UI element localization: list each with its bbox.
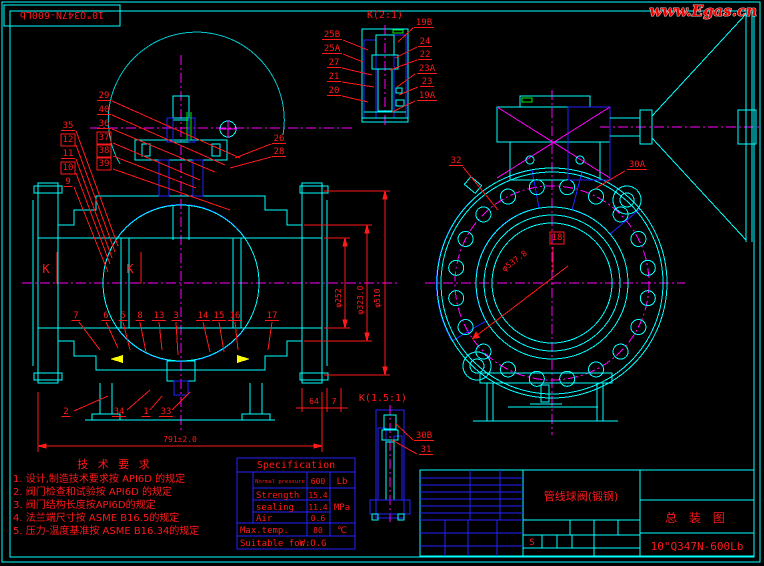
- svg-text:19A: 19A: [419, 91, 436, 101]
- spec-sealing-label: sealing: [256, 503, 294, 513]
- svg-text:28: 28: [274, 147, 285, 157]
- svg-text:30A: 30A: [629, 160, 646, 170]
- dimension-text: φ537.8: [500, 249, 529, 274]
- detail-k2-title: K(2:1): [367, 10, 403, 21]
- svg-text:40: 40: [99, 105, 110, 115]
- specification-table: Specification Normal pressure 600 Lb Str…: [237, 458, 355, 549]
- part-callout-15: 15: [212, 311, 226, 352]
- svg-text:33: 33: [161, 407, 172, 417]
- svg-text:23: 23: [422, 77, 433, 87]
- part-callout-33: 33: [159, 392, 190, 417]
- svg-text:37: 37: [99, 133, 110, 143]
- spec-pressure-label: Normal pressure: [255, 479, 305, 485]
- spec-maxtemp-label: Max.temp.: [240, 526, 289, 536]
- svg-text:26: 26: [274, 134, 285, 144]
- part-callout-6: 6: [102, 311, 118, 348]
- spec-mpa-unit: MPa: [334, 503, 350, 513]
- part-callout-8: 8: [136, 311, 146, 352]
- part-callout-31: 31: [392, 440, 433, 455]
- svg-text:15: 15: [214, 311, 225, 321]
- tech-req-title: 技 术 要 求: [77, 458, 153, 471]
- svg-text:31: 31: [421, 445, 432, 455]
- weld-mark-left: [110, 355, 123, 363]
- svg-text:3: 3: [173, 311, 178, 321]
- svg-text:20: 20: [329, 86, 340, 96]
- dimension-text: φ510: [373, 288, 382, 307]
- svg-text:36: 36: [99, 119, 110, 129]
- spec-air-value: 0.6: [311, 514, 326, 523]
- dimension-text: φ252: [334, 288, 343, 307]
- spec-strength-value: 15.4: [308, 491, 327, 500]
- part-callout-32: 32: [449, 156, 498, 210]
- svg-text:25A: 25A: [324, 44, 341, 54]
- spec-sealing-value: 11.4: [308, 503, 327, 512]
- dimension-text: 791±2.0: [163, 435, 197, 444]
- svg-text:12: 12: [63, 135, 74, 145]
- svg-text:19B: 19B: [416, 18, 432, 28]
- svg-text:34: 34: [114, 407, 125, 417]
- gear-operator: [497, 96, 610, 180]
- svg-text:5: 5: [120, 311, 125, 321]
- dimension-text: φ323.0: [356, 285, 365, 314]
- dimension-text: 64: [309, 397, 319, 406]
- spec-suitable-value: W.O.G: [299, 539, 326, 549]
- part-callout-1: 1: [142, 396, 162, 417]
- svg-text:27: 27: [329, 58, 340, 68]
- spec-pressure-unit: Lb: [337, 477, 348, 487]
- svg-text:22: 22: [420, 50, 431, 60]
- weld-mark-right: [237, 355, 250, 363]
- ball-valve-assembly-drawing: 10"Q347N-600Lb www.Egas.cn: [0, 0, 764, 566]
- spec-air-label: Air: [256, 514, 273, 524]
- svg-text:17: 17: [267, 311, 278, 321]
- svg-text:10: 10: [63, 163, 74, 173]
- part-callout-39: 39: [97, 158, 230, 210]
- technical-requirements: 技 术 要 求 1. 设计,制造技术要求按 API6D 的规定 2. 阀门检查和…: [13, 458, 199, 537]
- detail-k15: K(1.5:1): [359, 393, 410, 522]
- title-block-model: 10"Q347N-600Lb: [651, 540, 744, 553]
- title-block-revision: S: [529, 538, 534, 548]
- part-callout-36: 36: [97, 119, 215, 172]
- spec-maxtemp-unit: ℃: [337, 526, 347, 536]
- svg-text:21: 21: [329, 72, 340, 82]
- tech-req-item: 3. 阀门结构长度按API6D的规定: [13, 498, 156, 511]
- svg-text:14: 14: [198, 311, 209, 321]
- part-callout-5: 5: [119, 311, 130, 350]
- part-callout-29: 29: [97, 91, 240, 158]
- cad-drawing-canvas: 10"Q347N-600Lb www.Egas.cn: [0, 0, 764, 566]
- svg-text:11: 11: [63, 149, 74, 159]
- spec-pressure-value: 600: [311, 477, 326, 486]
- svg-text:2: 2: [63, 407, 68, 417]
- part-callout-14: 14: [196, 311, 210, 352]
- part-callout-3: 3: [172, 311, 181, 355]
- part-callout-K: K: [42, 252, 57, 284]
- watermark-logo: www.Egas.cn: [649, 2, 757, 20]
- corner-stamp-part-number: 10"Q347N-600Lb: [20, 9, 104, 20]
- part-callout-7: 7: [72, 311, 100, 350]
- tech-req-item: 4. 法兰端尺寸按 ASME B16.5的规定: [13, 511, 179, 524]
- svg-text:35: 35: [63, 121, 74, 131]
- svg-text:30B: 30B: [416, 431, 432, 441]
- spec-maxtemp-value: 80: [313, 526, 323, 535]
- title-block-drawing-type: 总 装 图: [665, 511, 729, 525]
- svg-text:25B: 25B: [324, 30, 340, 40]
- callouts-layer: 3512111092940363738392628765813314151617…: [42, 18, 646, 455]
- stem-assembly: [135, 96, 237, 196]
- svg-text:7: 7: [73, 311, 78, 321]
- svg-text:1: 1: [143, 407, 148, 417]
- svg-text:8: 8: [137, 311, 142, 321]
- part-callout-17: 17: [265, 311, 279, 350]
- svg-text:9: 9: [65, 177, 70, 187]
- tech-req-item: 1. 设计,制造技术要求按 API6D 的规定: [13, 472, 185, 485]
- tech-req-item: 2. 阀门检查和试验按 API6D 的规定: [13, 485, 172, 498]
- spec-strength-label: Strength: [256, 491, 299, 501]
- detail-k2: K(2:1): [362, 10, 408, 126]
- spec-title: Specification: [257, 460, 335, 471]
- svg-text:13: 13: [154, 311, 165, 321]
- part-callout-19A: 19A: [392, 91, 437, 112]
- svg-text:24: 24: [420, 37, 431, 47]
- title-block: 管线球阀(锻钢) 总 装 图 10"Q347N-600Lb S: [420, 470, 754, 556]
- svg-text:18: 18: [552, 233, 563, 243]
- end-view: [425, 12, 760, 435]
- front-section-view: [22, 32, 400, 452]
- part-callout-13: 13: [152, 311, 166, 350]
- svg-text:23A: 23A: [419, 64, 436, 74]
- svg-text:16: 16: [230, 311, 241, 321]
- svg-text:29: 29: [99, 91, 110, 101]
- svg-text:K: K: [42, 262, 50, 276]
- svg-text:6: 6: [103, 311, 108, 321]
- svg-text:38: 38: [99, 146, 110, 156]
- title-block-grid: [420, 470, 523, 556]
- detail-k15-title: K(1.5:1): [359, 393, 407, 404]
- dimension-text: 7: [332, 397, 337, 406]
- svg-text:K: K: [126, 262, 134, 276]
- svg-text:32: 32: [451, 156, 462, 166]
- tech-req-item: 5. 压力-温度基准按 ASME B16.34的规定: [13, 524, 199, 537]
- svg-text:39: 39: [99, 159, 110, 169]
- title-block-valve-name: 管线球阀(锻钢): [544, 489, 619, 503]
